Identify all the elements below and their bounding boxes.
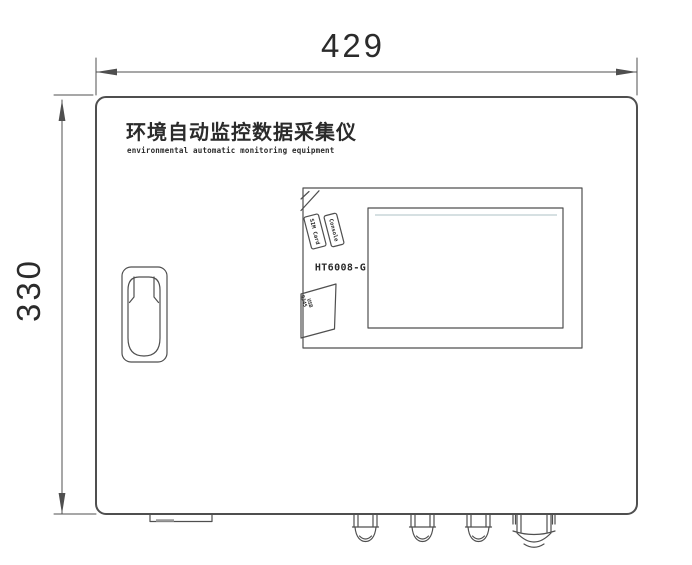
gland-dome-inner-arc (524, 544, 544, 547)
dimension-height-value: 330 (10, 258, 47, 322)
console-port-label: Console (327, 218, 339, 243)
cable-gland-1 (353, 514, 379, 542)
port-flap-top: Console SIM Card (301, 191, 344, 250)
dimension-height: 330 (10, 95, 96, 514)
gland-collar-curve (513, 531, 555, 535)
model-label: HT6008-G (315, 263, 366, 274)
arrowhead-right-icon (616, 69, 637, 76)
gland-nut-sides (517, 514, 551, 532)
port-flap-bottom: RJ45 USB (299, 284, 336, 338)
arrowhead-down-icon (59, 493, 66, 514)
device-subtitle-en: environmental automatic monitoring equip… (127, 146, 334, 155)
gland-nut-facets (521, 514, 547, 532)
dimension-width: 429 (96, 27, 637, 95)
flap-edge-line-2 (301, 192, 309, 200)
enclosure-outline (96, 97, 637, 514)
lock-cup (128, 277, 160, 356)
display-panel: HT6008-G Console SIM Card RJ45 USB (299, 188, 582, 348)
cable-gland-2 (410, 514, 436, 542)
cable-gland-3 (466, 514, 492, 542)
device-title-cn: 环境自动监控数据采集仪 (126, 120, 357, 144)
dimension-width-value: 429 (321, 27, 385, 64)
mounting-tab (150, 514, 212, 522)
drawing-canvas: 429 330 环境自动监控数据采集仪 environmental automa… (0, 0, 692, 565)
arrowhead-left-icon (96, 69, 117, 76)
flap-edge-line (301, 191, 319, 211)
cable-gland-4-large (513, 514, 555, 547)
lcd-screen (368, 208, 563, 328)
gland-side-tabs (513, 514, 555, 524)
engineering-drawing: 429 330 环境自动监控数据采集仪 environmental automa… (0, 0, 692, 565)
bottom-port-label-b: USB (305, 298, 313, 308)
bottom-port-flap-outline (301, 284, 336, 338)
door-lock-handle (122, 267, 167, 362)
arrowhead-up-icon (59, 100, 66, 121)
